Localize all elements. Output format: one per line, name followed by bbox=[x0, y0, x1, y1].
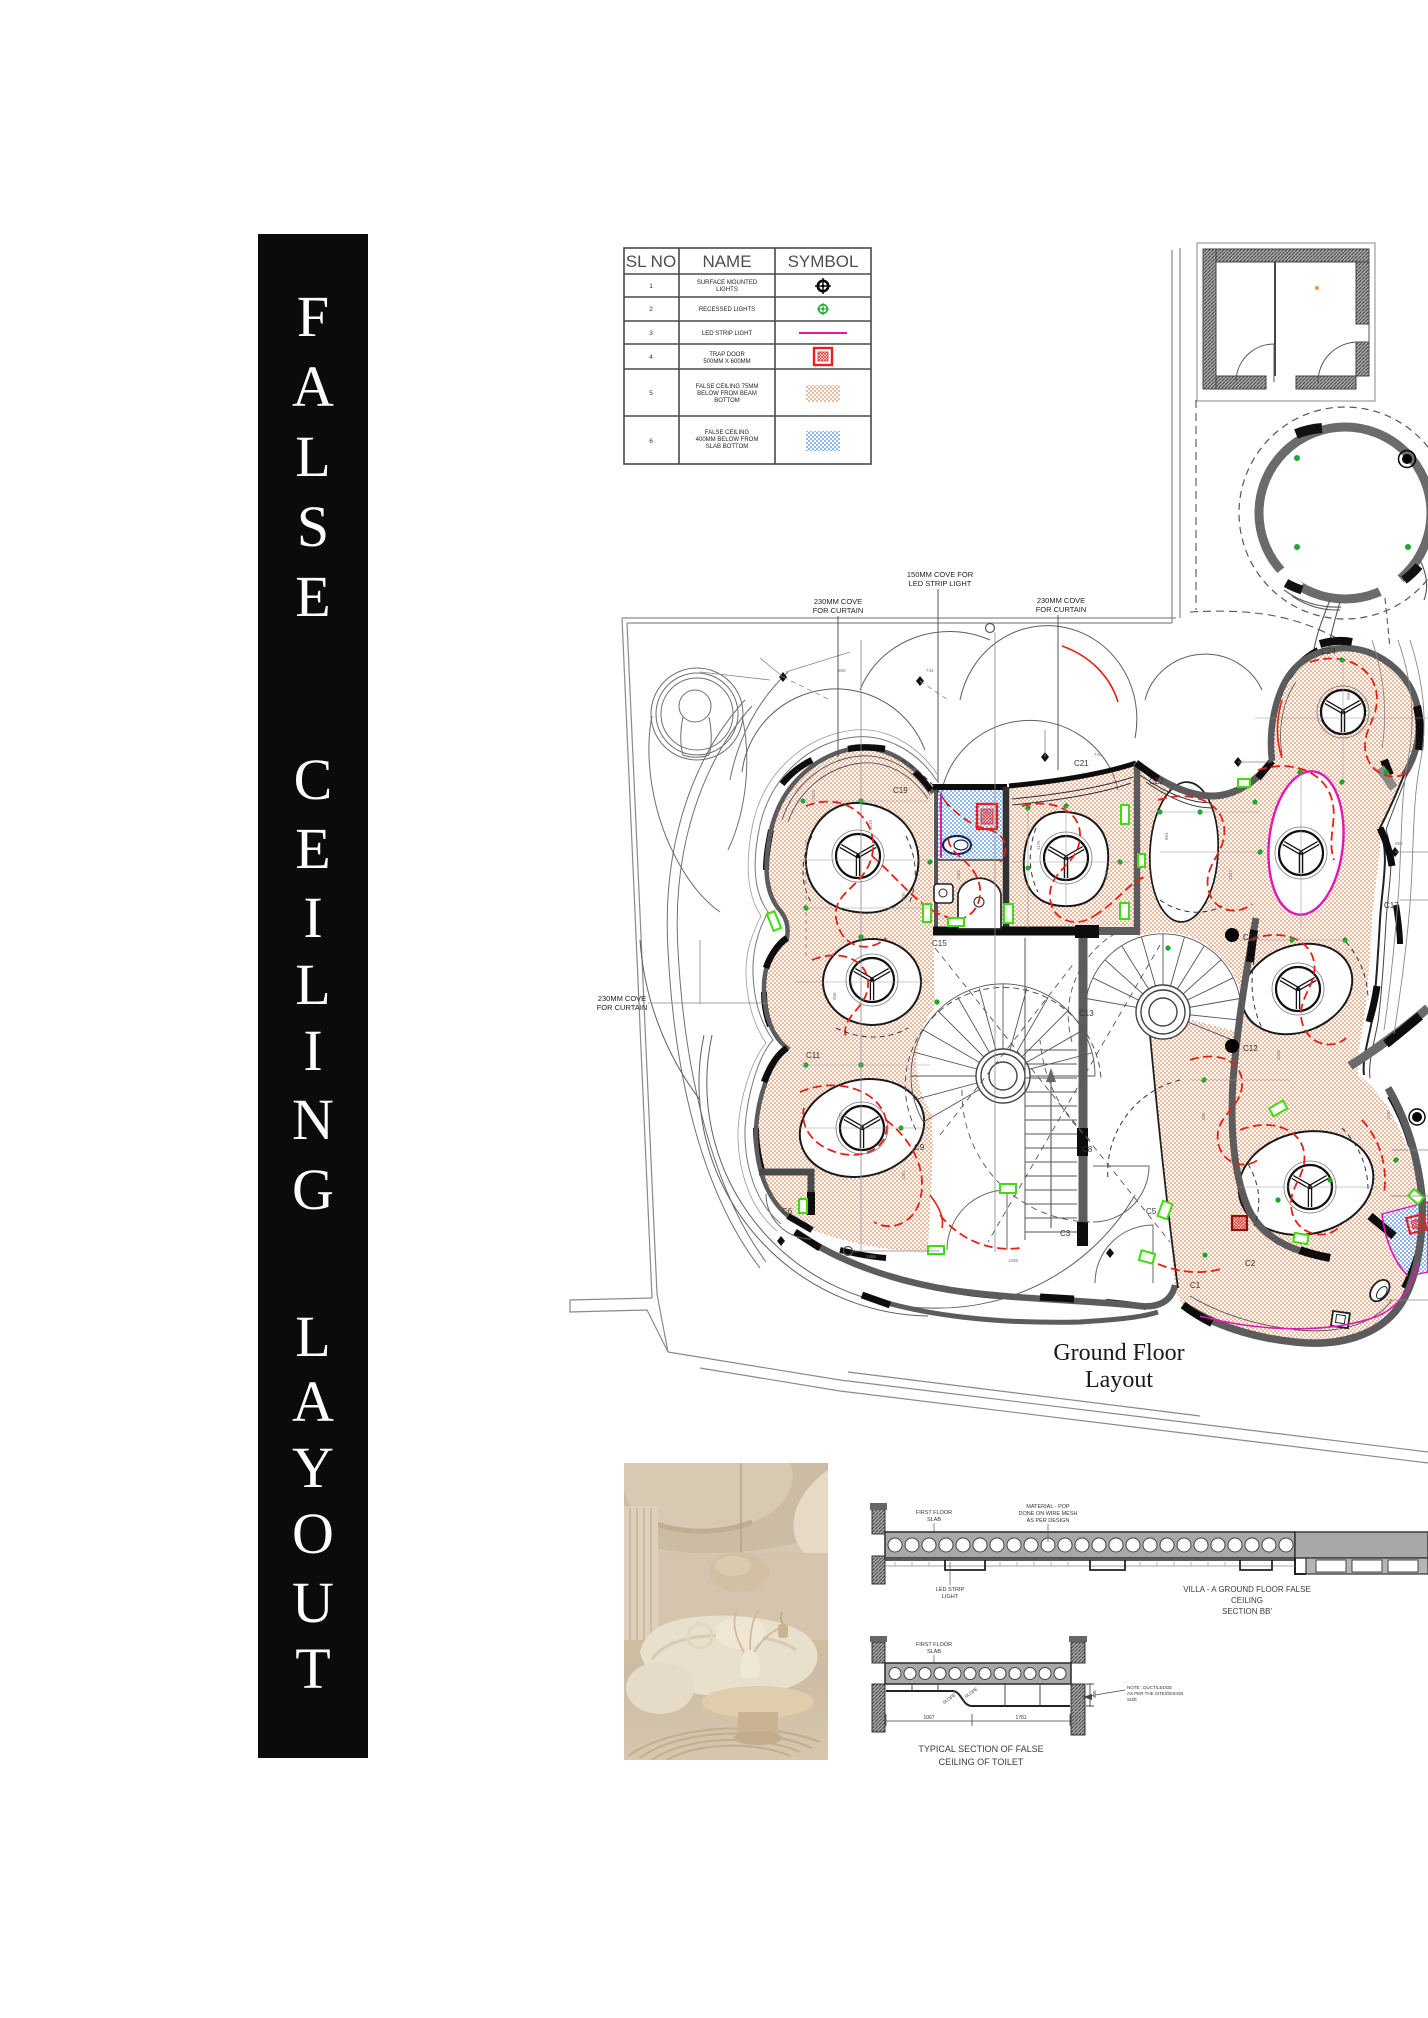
svg-text:3: 3 bbox=[649, 330, 653, 337]
svg-text:BOTTOM: BOTTOM bbox=[714, 398, 740, 404]
svg-text:Y: Y bbox=[292, 1435, 334, 1500]
svg-text:C15: C15 bbox=[932, 939, 947, 948]
svg-text:230MM COVE: 230MM COVE bbox=[1037, 596, 1085, 605]
svg-text:NOTE : DUCT/LEDGE: NOTE : DUCT/LEDGE bbox=[1127, 1685, 1172, 1690]
svg-text:SL NO: SL NO bbox=[626, 252, 676, 271]
svg-text:958: 958 bbox=[1395, 841, 1403, 846]
svg-text:1519: 1519 bbox=[868, 819, 873, 830]
svg-text:906: 906 bbox=[832, 992, 837, 1000]
svg-text:LIGHT: LIGHT bbox=[942, 1594, 959, 1600]
svg-text:230MM COVE: 230MM COVE bbox=[814, 597, 862, 606]
svg-text:C13: C13 bbox=[1079, 1009, 1094, 1018]
svg-text:SURFACE MOUNTED: SURFACE MOUNTED bbox=[697, 280, 758, 286]
svg-text:SLAB BOTTOM: SLAB BOTTOM bbox=[706, 444, 749, 450]
svg-text:703: 703 bbox=[838, 1112, 843, 1120]
svg-text:LED STRIP: LED STRIP bbox=[936, 1587, 965, 1593]
svg-text:C12: C12 bbox=[1243, 1044, 1258, 1053]
svg-text:1586: 1586 bbox=[1008, 1258, 1019, 1263]
svg-text:1781: 1781 bbox=[1015, 1715, 1026, 1721]
svg-text:2217: 2217 bbox=[1228, 869, 1233, 880]
svg-text:C2: C2 bbox=[1245, 1259, 1256, 1268]
svg-text:FOR CURTAIN: FOR CURTAIN bbox=[1036, 605, 1087, 614]
svg-text:FALSE CEILING 75MM: FALSE CEILING 75MM bbox=[696, 384, 759, 390]
svg-text:1586: 1586 bbox=[866, 1254, 877, 1259]
svg-text:C1: C1 bbox=[1190, 1281, 1201, 1290]
svg-text:FALSE CEILING: FALSE CEILING bbox=[705, 430, 750, 436]
svg-text:Layout: Layout bbox=[1085, 1367, 1153, 1393]
svg-text:FOR CURTAIN: FOR CURTAIN bbox=[813, 606, 864, 615]
svg-text:500MM X 600MM: 500MM X 600MM bbox=[703, 359, 750, 365]
svg-text:CEILING: CEILING bbox=[1231, 1596, 1263, 1605]
svg-text:SLAB: SLAB bbox=[927, 1649, 941, 1655]
svg-text:C9: C9 bbox=[914, 1143, 925, 1152]
svg-text:MATERIAL - POP: MATERIAL - POP bbox=[1026, 1504, 1070, 1510]
svg-text:G: G bbox=[292, 1157, 334, 1222]
svg-text:6: 6 bbox=[649, 438, 653, 445]
svg-text:RECESSED LIGHTS: RECESSED LIGHTS bbox=[699, 307, 755, 313]
svg-text:230MM COVE: 230MM COVE bbox=[598, 994, 646, 1003]
svg-text:AS PER DESIGN: AS PER DESIGN bbox=[1027, 1518, 1070, 1524]
svg-text:886: 886 bbox=[1201, 1112, 1206, 1120]
svg-text:DONE ON WIRE MESH: DONE ON WIRE MESH bbox=[1019, 1511, 1078, 1517]
svg-text:VILLA - A GROUND FLOOR FALSE: VILLA - A GROUND FLOOR FALSE bbox=[1183, 1585, 1311, 1594]
svg-text:A: A bbox=[292, 1369, 334, 1434]
svg-text:744: 744 bbox=[1094, 752, 1102, 757]
svg-text:L: L bbox=[295, 1304, 330, 1369]
svg-text:E: E bbox=[295, 816, 330, 881]
svg-text:C6: C6 bbox=[782, 1207, 793, 1216]
svg-text:2535: 2535 bbox=[811, 789, 816, 800]
svg-text:FIRST FLOOR: FIRST FLOOR bbox=[916, 1510, 952, 1516]
svg-text:N: N bbox=[292, 1087, 334, 1152]
svg-text:SLAB: SLAB bbox=[927, 1517, 941, 1523]
svg-text:I: I bbox=[303, 885, 322, 950]
svg-text:SIZE: SIZE bbox=[1127, 1697, 1137, 1702]
svg-text:2: 2 bbox=[649, 306, 653, 313]
svg-text:C21: C21 bbox=[1074, 759, 1089, 768]
svg-text:400MM BELOW FROM: 400MM BELOW FROM bbox=[696, 437, 759, 443]
svg-text:744: 744 bbox=[926, 668, 934, 673]
svg-text:C11: C11 bbox=[806, 1051, 821, 1060]
svg-text:1052: 1052 bbox=[956, 869, 961, 880]
svg-text:Ground Floor: Ground Floor bbox=[1053, 1340, 1184, 1366]
svg-text:1081: 1081 bbox=[901, 1169, 906, 1180]
svg-text:E: E bbox=[295, 564, 330, 629]
svg-text:1067: 1067 bbox=[923, 1715, 934, 1721]
svg-text:C22: C22 bbox=[1149, 777, 1164, 786]
svg-text:L: L bbox=[295, 424, 330, 489]
svg-text:C3: C3 bbox=[1060, 1229, 1071, 1238]
svg-text:L: L bbox=[295, 952, 330, 1017]
svg-text:958: 958 bbox=[1346, 692, 1351, 700]
svg-text:T: T bbox=[295, 1636, 330, 1701]
svg-text:C: C bbox=[294, 747, 333, 812]
svg-text:LED STRIP LIGHT: LED STRIP LIGHT bbox=[909, 579, 972, 588]
svg-text:865: 865 bbox=[838, 668, 846, 673]
svg-text:1790: 1790 bbox=[1104, 869, 1109, 880]
svg-text:FIRST FLOOR: FIRST FLOOR bbox=[916, 1642, 952, 1648]
svg-text:1176: 1176 bbox=[1036, 840, 1041, 850]
svg-text:NAME: NAME bbox=[702, 252, 751, 271]
svg-text:864: 864 bbox=[1164, 832, 1169, 840]
svg-text:F: F bbox=[297, 284, 329, 349]
svg-text:C16: C16 bbox=[1243, 933, 1258, 942]
svg-text:A: A bbox=[292, 354, 334, 419]
svg-text:TRAP DOOR: TRAP DOOR bbox=[709, 352, 745, 358]
svg-text:C17: C17 bbox=[1384, 901, 1399, 910]
svg-text:TYPICAL SECTION OF FALSE: TYPICAL SECTION OF FALSE bbox=[918, 1744, 1043, 1754]
svg-text:U: U bbox=[292, 1570, 334, 1635]
svg-text:S: S bbox=[297, 494, 329, 559]
svg-text:SYMBOL: SYMBOL bbox=[788, 252, 859, 271]
svg-text:CEILING OF TOILET: CEILING OF TOILET bbox=[939, 1757, 1024, 1767]
svg-text:800: 800 bbox=[901, 892, 906, 900]
svg-text:C8: C8 bbox=[1082, 1145, 1093, 1154]
svg-text:1100: 1100 bbox=[1386, 1110, 1391, 1120]
svg-text:C19: C19 bbox=[893, 786, 908, 795]
svg-text:LIGHTS: LIGHTS bbox=[716, 287, 738, 293]
svg-text:4: 4 bbox=[649, 354, 653, 361]
svg-text:400: 400 bbox=[1092, 1690, 1097, 1698]
svg-text:C24: C24 bbox=[1321, 647, 1336, 656]
svg-text:LED STRIP LIGHT: LED STRIP LIGHT bbox=[702, 331, 753, 337]
svg-text:BELOW FROM BEAM: BELOW FROM BEAM bbox=[697, 391, 757, 397]
svg-text:C5: C5 bbox=[1146, 1207, 1157, 1216]
svg-text:AS PER THE SITE/DESIGN: AS PER THE SITE/DESIGN bbox=[1127, 1691, 1183, 1696]
svg-text:SECTION BB': SECTION BB' bbox=[1222, 1607, 1272, 1616]
svg-text:5: 5 bbox=[649, 390, 653, 397]
svg-text:2036: 2036 bbox=[1276, 1049, 1281, 1060]
svg-text:1: 1 bbox=[649, 283, 653, 290]
svg-text:FOR CURTAIN: FOR CURTAIN bbox=[597, 1003, 648, 1012]
svg-text:I: I bbox=[303, 1018, 322, 1083]
svg-text:150MM COVE FOR: 150MM COVE FOR bbox=[907, 570, 974, 579]
svg-text:O: O bbox=[292, 1501, 334, 1566]
